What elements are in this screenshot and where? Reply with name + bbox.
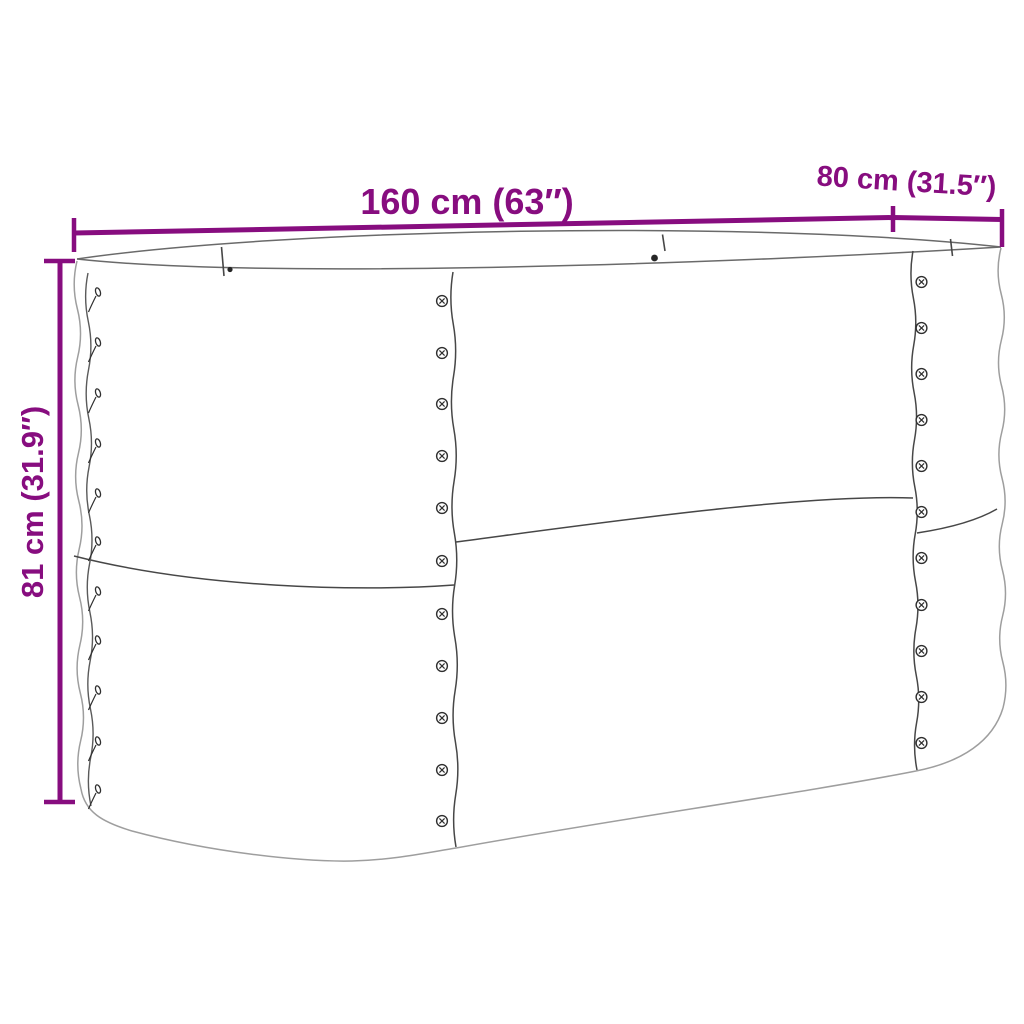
width-dimension-label: 160 cm (63″) bbox=[360, 181, 573, 222]
screw-side-icon bbox=[89, 685, 102, 710]
screw-icon bbox=[437, 765, 448, 776]
screw-icon bbox=[916, 323, 927, 334]
screw-icon bbox=[916, 600, 927, 611]
middle-panel-horizontal-seam bbox=[456, 498, 913, 542]
screw-icon bbox=[916, 738, 927, 749]
screw-side-icon bbox=[89, 488, 102, 513]
height-dimension-label: 81 cm (31.9″) bbox=[15, 406, 50, 598]
depth-dimension-label: 80 cm (31.5″) bbox=[816, 161, 998, 204]
screw-icon bbox=[916, 646, 927, 657]
screw-icon bbox=[916, 369, 927, 380]
screw-side-icon bbox=[89, 438, 102, 463]
width-dimension: 160 cm (63″) bbox=[74, 181, 893, 252]
screw-icon bbox=[437, 609, 448, 620]
screw-icon bbox=[437, 713, 448, 724]
panel-seams bbox=[74, 251, 997, 847]
screw-side-icon bbox=[89, 388, 102, 413]
screw-icon bbox=[916, 507, 927, 518]
bottom-right-corner bbox=[916, 708, 1003, 771]
rim-seam-tick bbox=[222, 247, 225, 276]
depth-dimension: 80 cm (31.5″) bbox=[816, 161, 1002, 247]
planter-body-outline bbox=[74, 248, 1006, 861]
right-outer-wavy-edge bbox=[998, 248, 1006, 708]
depth-dimension-line bbox=[893, 218, 1002, 220]
right-panel-horizontal-seam bbox=[917, 509, 997, 533]
planter-drawing bbox=[74, 230, 1006, 861]
screw-icon bbox=[916, 277, 927, 288]
left-panel-horizontal-seam bbox=[74, 556, 454, 588]
rim-screw-dot bbox=[227, 267, 232, 272]
product-dimension-diagram: 160 cm (63″) 80 cm (31.5″) 81 cm (31.9″) bbox=[0, 0, 1024, 1024]
rim-seam-tick bbox=[663, 235, 666, 252]
rim-screw-dot bbox=[651, 255, 658, 262]
screw-side-icon bbox=[89, 586, 102, 611]
height-dimension: 81 cm (31.9″) bbox=[15, 261, 75, 802]
screw-icon bbox=[437, 348, 448, 359]
screw-icon bbox=[437, 661, 448, 672]
screw-side-icon bbox=[89, 736, 102, 761]
screw-icon bbox=[916, 415, 927, 426]
planter-rim bbox=[77, 230, 1001, 276]
middle-vertical-wavy-seam bbox=[451, 272, 458, 847]
left-outer-wavy-edge bbox=[74, 261, 83, 789]
screw-icon bbox=[437, 816, 448, 827]
screw-side-icon bbox=[89, 635, 102, 660]
screw-side-icon bbox=[89, 287, 102, 312]
screw-icon bbox=[916, 692, 927, 703]
screw-rows bbox=[89, 277, 927, 827]
diagram-svg: 160 cm (63″) 80 cm (31.5″) 81 cm (31.9″) bbox=[0, 0, 1024, 1024]
screw-icon bbox=[916, 461, 927, 472]
bottom-edge bbox=[81, 771, 916, 861]
screw-icon bbox=[916, 553, 927, 564]
rim-bottom-arc bbox=[77, 247, 1001, 269]
screw-icon bbox=[437, 503, 448, 514]
screw-icon bbox=[437, 296, 448, 307]
screw-icon bbox=[437, 399, 448, 410]
screw-icon bbox=[437, 556, 448, 567]
screw-side-icon bbox=[89, 784, 102, 809]
screw-side-icon bbox=[89, 536, 102, 561]
screw-icon bbox=[437, 451, 448, 462]
